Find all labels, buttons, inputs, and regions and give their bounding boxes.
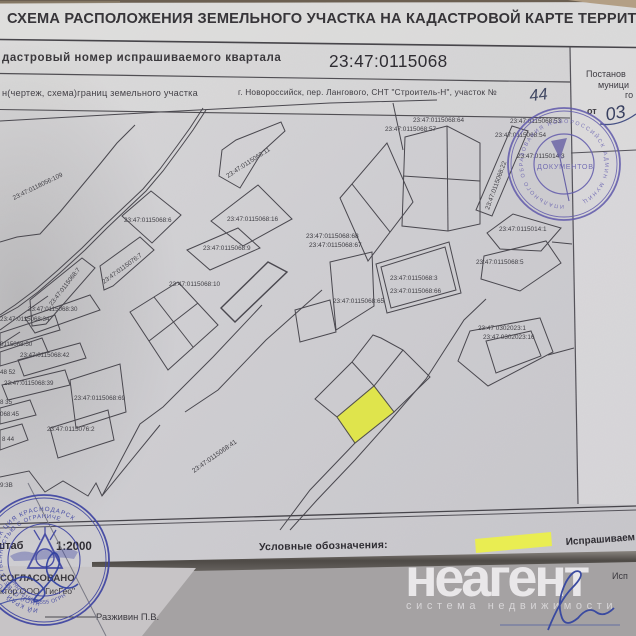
svg-text:23:47:0115068:65: 23:47:0115068:65 [333,298,385,305]
svg-text:н(чертеж, схема)границ земельн: н(чертеж, схема)границ земельного участк… [2,88,199,98]
svg-text:23:47:0115068:30: 23:47:0115068:30 [28,306,78,313]
svg-text:СХЕМА РАСПОЛОЖЕНИЯ ЗЕМЕЛЬНОГО: СХЕМА РАСПОЛОЖЕНИЯ ЗЕМЕЛЬНОГО УЧАСТКА НА… [7,9,636,27]
svg-text:23:47:0115068:16: 23:47:0115068:16 [227,216,279,223]
svg-text:Разживин П.В.: Разживин П.В. [96,611,159,622]
svg-text:го: го [625,90,633,100]
svg-text:9:3В: 9:3В [0,482,13,489]
svg-text:дастровый номер испрашиваемого: дастровый номер испрашиваемого квартала [2,52,281,64]
svg-text:23:47:0115068:57: 23:47:0115068:57 [385,126,437,133]
svg-text:23:47:0115068:3: 23:47:0115068:3 [390,275,438,282]
svg-text:44: 44 [528,85,548,105]
svg-text:23:47:0115068:9: 23:47:0115068:9 [203,245,251,252]
svg-text:Постанов: Постанов [586,69,626,79]
svg-text:8 35: 8 35 [0,399,13,406]
svg-text:23:47:0115068:64: 23:47:0115068:64 [413,117,465,124]
svg-text:23:47:0115068:67: 23:47:0115068:67 [309,242,362,249]
svg-text:23:47:0115068: 23:47:0115068 [329,51,448,71]
svg-text:23:47:0115068:69: 23:47:0115068:69 [74,395,126,402]
svg-text:23:47:0115068:6: 23:47:0115068:6 [124,217,172,224]
svg-text:0115068:50: 0115068:50 [0,341,33,348]
svg-text:23:47:0115068:66: 23:47:0115068:66 [390,288,442,295]
svg-text:23:47:0115068:5: 23:47:0115068:5 [476,259,524,266]
svg-text:068:45: 068:45 [0,411,19,418]
svg-text:23:47:0115068:10: 23:47:0115068:10 [169,281,221,288]
svg-text:23:47 0302023:1: 23:47 0302023:1 [478,325,526,332]
svg-text:23:47:0115076:2: 23:47:0115076:2 [47,426,95,433]
svg-text:г. Новороссийск, пер. Ланговог: г. Новороссийск, пер. Лангового, СНТ "Ст… [238,87,497,97]
svg-text:23:47:0115068:34: 23:47:0115068:34 [0,316,50,323]
svg-text:23:47:0115068:39: 23:47:0115068:39 [4,380,54,387]
svg-text:ДОКУМЕНТОВ: ДОКУМЕНТОВ [537,162,594,171]
svg-text:23:47:0115068:42: 23:47:0115068:42 [20,352,70,359]
svg-text:муници: муници [598,80,629,90]
svg-text:23:47:0115014:1: 23:47:0115014:1 [499,226,547,233]
svg-text:Исп: Исп [612,571,628,581]
svg-text:система недвижимости: система недвижимости [406,600,617,612]
svg-text:48 52: 48 52 [0,369,16,376]
svg-text:8 44: 8 44 [2,436,15,443]
svg-text:Условные обозначения:: Условные обозначения: [259,539,388,553]
svg-text:23:47 0302023:16: 23:47 0302023:16 [483,334,535,341]
svg-text:23:47:0115068:68: 23:47:0115068:68 [306,233,359,240]
